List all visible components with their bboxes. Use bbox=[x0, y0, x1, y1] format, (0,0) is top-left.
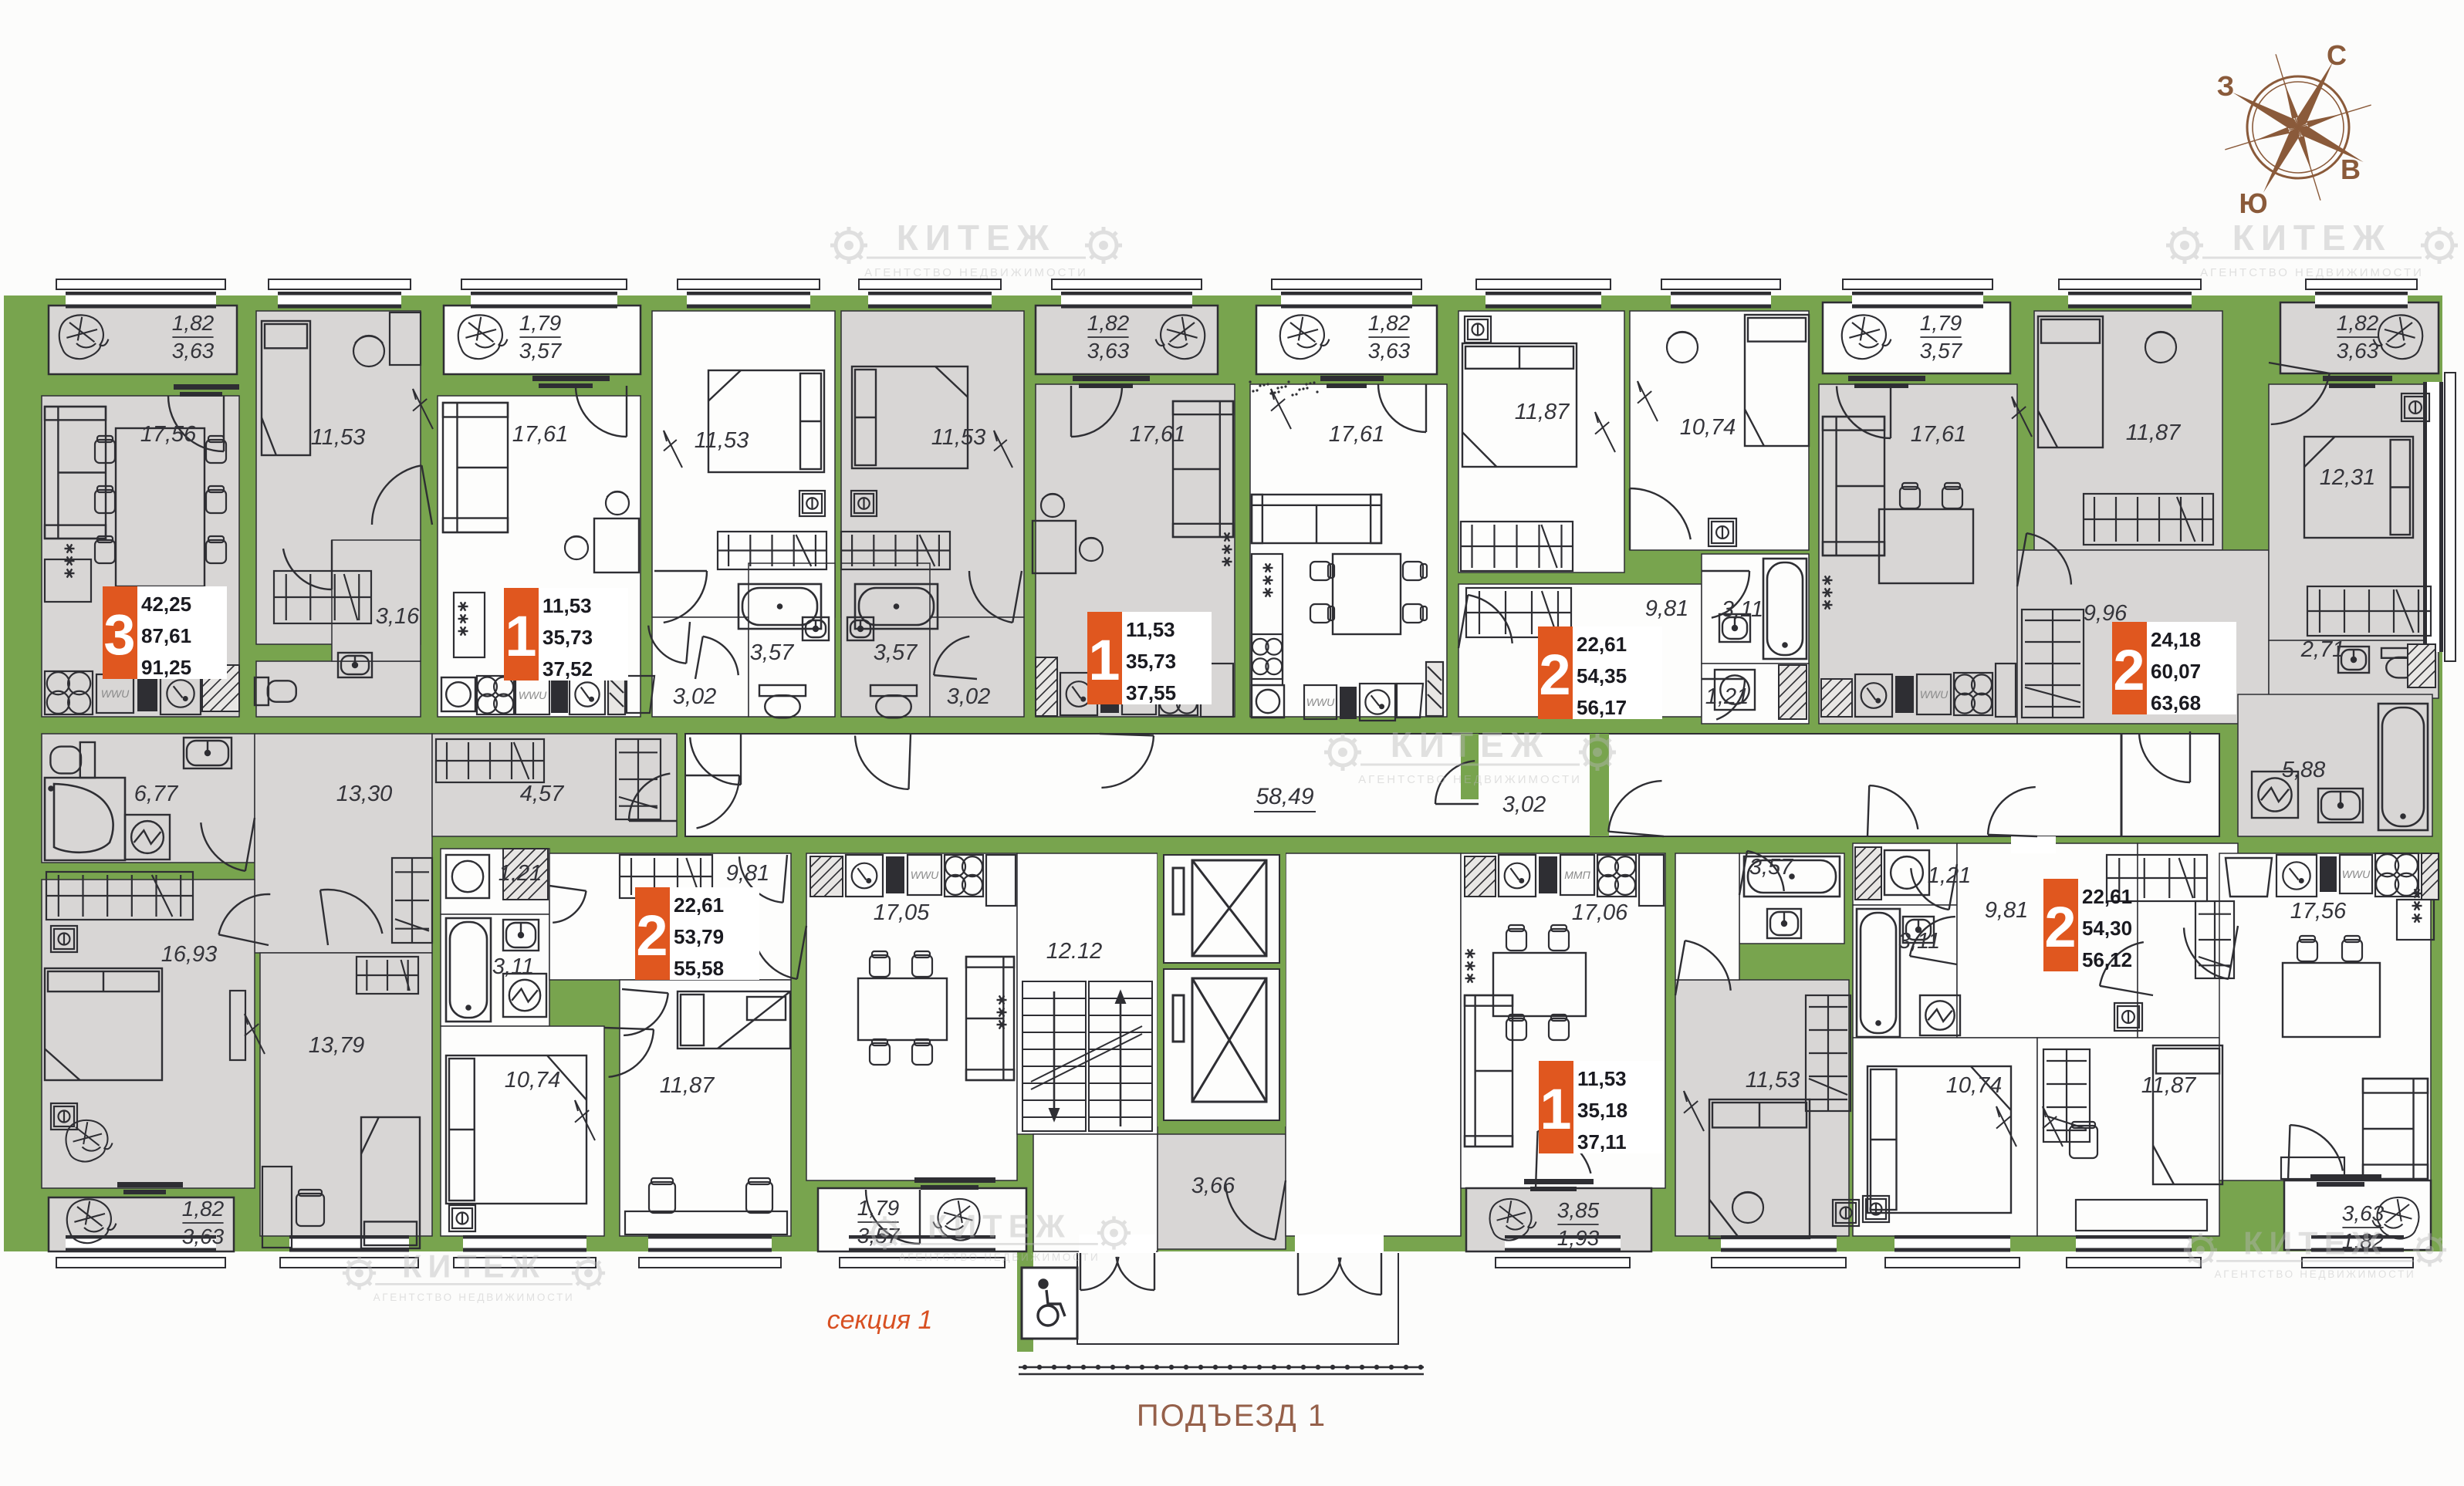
svg-text:6,77: 6,77 bbox=[134, 782, 179, 806]
svg-text:секция 1: секция 1 bbox=[827, 1305, 933, 1335]
svg-text:Ю: Ю bbox=[2239, 187, 2267, 219]
svg-text:10,74: 10,74 bbox=[1946, 1073, 2003, 1098]
svg-text:17,05: 17,05 bbox=[874, 900, 930, 925]
svg-text:2,71: 2,71 bbox=[2300, 637, 2344, 662]
svg-text:3,63: 3,63 bbox=[172, 339, 215, 363]
svg-text:11,53: 11,53 bbox=[695, 428, 749, 453]
svg-text:58,49: 58,49 bbox=[1256, 784, 1313, 809]
svg-text:1: 1 bbox=[505, 604, 536, 668]
svg-text:АГЕНТСТВО НЕДВИЖИМОСТИ: АГЕНТСТВО НЕДВИЖИМОСТИ bbox=[864, 266, 1088, 279]
svg-text:55,58: 55,58 bbox=[674, 957, 724, 980]
svg-text:11,87: 11,87 bbox=[1515, 400, 1570, 424]
svg-text:11,53: 11,53 bbox=[1746, 1068, 1800, 1093]
svg-text:3,63: 3,63 bbox=[2337, 339, 2379, 363]
svg-text:1,82: 1,82 bbox=[1368, 311, 1411, 335]
svg-text:54,30: 54,30 bbox=[2082, 917, 2132, 940]
svg-text:17,61: 17,61 bbox=[1130, 422, 1186, 447]
svg-text:3,57: 3,57 bbox=[750, 640, 795, 665]
svg-text:2: 2 bbox=[2044, 895, 2076, 959]
svg-text:11,87: 11,87 bbox=[2141, 1073, 2197, 1098]
svg-text:АГЕНТСТВО НЕДВИЖИМОСТИ: АГЕНТСТВО НЕДВИЖИМОСТИ bbox=[2200, 266, 2424, 279]
svg-text:3,02: 3,02 bbox=[947, 684, 990, 709]
svg-text:КИТЕЖ: КИТЕЖ bbox=[928, 1208, 1071, 1244]
svg-text:42,25: 42,25 bbox=[141, 593, 191, 616]
svg-text:WWU: WWU bbox=[911, 869, 939, 881]
svg-text:КИТЕЖ: КИТЕЖ bbox=[897, 218, 1056, 258]
svg-text:17,06: 17,06 bbox=[1572, 900, 1628, 925]
svg-text:11,87: 11,87 bbox=[660, 1073, 715, 1098]
svg-text:17,61: 17,61 bbox=[1911, 422, 1967, 447]
svg-text:3,11: 3,11 bbox=[1898, 929, 1940, 954]
svg-text:11,53: 11,53 bbox=[542, 594, 592, 617]
svg-text:56,17: 56,17 bbox=[1577, 696, 1627, 719]
svg-text:17,61: 17,61 bbox=[1329, 422, 1385, 447]
svg-text:3,63: 3,63 bbox=[1087, 339, 1130, 363]
svg-text:5,88: 5,88 bbox=[2282, 758, 2325, 782]
svg-text:3,57: 3,57 bbox=[874, 640, 918, 665]
svg-text:КИТЕЖ: КИТЕЖ bbox=[1391, 724, 1550, 765]
svg-text:10,74: 10,74 bbox=[505, 1068, 561, 1093]
svg-text:WWU: WWU bbox=[1920, 688, 1949, 701]
svg-text:З: З bbox=[2217, 70, 2235, 102]
svg-text:АГЕНТСТВО НЕДВИЖИМОСТИ: АГЕНТСТВО НЕДВИЖИМОСТИ bbox=[373, 1292, 575, 1303]
svg-text:10,74: 10,74 bbox=[1680, 415, 1736, 440]
svg-text:60,07: 60,07 bbox=[2151, 660, 2201, 683]
svg-text:1,82: 1,82 bbox=[1087, 311, 1130, 335]
svg-text:9,81: 9,81 bbox=[726, 861, 769, 886]
svg-text:WWU: WWU bbox=[101, 687, 130, 700]
svg-text:37,11: 37,11 bbox=[1577, 1130, 1627, 1153]
svg-text:АГЕНТСТВО НЕДВИЖИМОСТИ: АГЕНТСТВО НЕДВИЖИМОСТИ bbox=[1358, 773, 1582, 786]
svg-text:22,61: 22,61 bbox=[1577, 633, 1627, 656]
svg-text:35,73: 35,73 bbox=[542, 626, 593, 649]
svg-text:37,52: 37,52 bbox=[542, 657, 593, 681]
svg-text:КИТЕЖ: КИТЕЖ bbox=[2232, 218, 2392, 258]
svg-text:17,56: 17,56 bbox=[2290, 899, 2347, 924]
svg-text:1,79: 1,79 bbox=[857, 1196, 900, 1220]
svg-text:16,93: 16,93 bbox=[161, 942, 218, 967]
svg-text:1,79: 1,79 bbox=[519, 311, 562, 335]
svg-text:АГЕНТСТВО НЕДВИЖИМОСТИ: АГЕНТСТВО НЕДВИЖИМОСТИ bbox=[2215, 1268, 2416, 1280]
svg-text:9,81: 9,81 bbox=[1985, 898, 2028, 923]
svg-text:3,57: 3,57 bbox=[1749, 855, 1794, 880]
svg-text:WWU: WWU bbox=[519, 689, 547, 701]
svg-text:11,53: 11,53 bbox=[1577, 1067, 1627, 1090]
svg-text:3,85: 3,85 bbox=[1557, 1198, 1600, 1222]
svg-text:1,82: 1,82 bbox=[172, 311, 215, 335]
svg-text:35,18: 35,18 bbox=[1577, 1099, 1627, 1122]
svg-text:91,25: 91,25 bbox=[141, 656, 191, 679]
svg-text:13,79: 13,79 bbox=[309, 1033, 365, 1058]
svg-text:3,57: 3,57 bbox=[1920, 339, 1963, 363]
svg-text:22,61: 22,61 bbox=[2082, 885, 2132, 908]
svg-text:3,11: 3,11 bbox=[1722, 597, 1763, 622]
svg-text:1: 1 bbox=[1088, 628, 1120, 692]
svg-text:35,73: 35,73 bbox=[1126, 650, 1176, 673]
svg-text:2: 2 bbox=[1539, 643, 1570, 707]
svg-text:1,21: 1,21 bbox=[1705, 684, 1749, 709]
svg-text:В: В bbox=[2341, 154, 2361, 185]
svg-text:63,68: 63,68 bbox=[2151, 691, 2201, 714]
svg-text:3,11: 3,11 bbox=[492, 954, 534, 979]
svg-text:1,21: 1,21 bbox=[1928, 863, 1971, 888]
svg-text:11,53: 11,53 bbox=[1126, 618, 1175, 641]
svg-text:3,16: 3,16 bbox=[376, 604, 420, 629]
svg-text:87,61: 87,61 bbox=[141, 624, 191, 647]
svg-text:3,63: 3,63 bbox=[182, 1224, 225, 1248]
svg-text:17,56: 17,56 bbox=[140, 422, 197, 447]
svg-text:12.12: 12.12 bbox=[1046, 939, 1103, 964]
svg-text:22,61: 22,61 bbox=[674, 893, 724, 917]
svg-text:1,21: 1,21 bbox=[499, 861, 542, 886]
svg-text:ПОДЪЕЗД 1: ПОДЪЕЗД 1 bbox=[1137, 1399, 1327, 1433]
svg-text:КИТЕЖ: КИТЕЖ bbox=[2243, 1225, 2387, 1261]
svg-text:37,55: 37,55 bbox=[1126, 681, 1176, 704]
svg-text:3,02: 3,02 bbox=[1502, 792, 1546, 817]
svg-text:1: 1 bbox=[1540, 1077, 1571, 1141]
svg-text:54,35: 54,35 bbox=[1577, 664, 1627, 687]
svg-text:1,93: 1,93 bbox=[1557, 1226, 1600, 1250]
svg-text:АГЕНТСТВО НЕДВИЖИМОСТИ: АГЕНТСТВО НЕДВИЖИМОСТИ bbox=[899, 1251, 1100, 1263]
svg-text:3,66: 3,66 bbox=[1191, 1174, 1235, 1198]
svg-text:17,61: 17,61 bbox=[512, 422, 569, 447]
svg-text:3,63: 3,63 bbox=[1368, 339, 1411, 363]
svg-text:3,02: 3,02 bbox=[673, 684, 716, 709]
svg-text:12,31: 12,31 bbox=[2320, 465, 2376, 490]
svg-text:53,79: 53,79 bbox=[674, 925, 724, 948]
svg-text:1,79: 1,79 bbox=[1920, 311, 1962, 335]
svg-text:4,57: 4,57 bbox=[520, 782, 565, 806]
svg-text:WWU: WWU bbox=[2342, 868, 2371, 880]
svg-text:3,57: 3,57 bbox=[519, 339, 563, 363]
svg-text:13,30: 13,30 bbox=[336, 782, 393, 806]
svg-text:11,53: 11,53 bbox=[311, 425, 365, 450]
svg-text:3: 3 bbox=[103, 603, 135, 667]
svg-text:WWU: WWU bbox=[1306, 696, 1335, 708]
svg-text:С: С bbox=[2327, 39, 2347, 71]
svg-text:ММП: ММП bbox=[1564, 869, 1590, 881]
svg-text:11,87: 11,87 bbox=[2126, 420, 2182, 445]
svg-text:11,53: 11,53 bbox=[931, 425, 985, 450]
svg-text:56,12: 56,12 bbox=[2082, 948, 2132, 971]
svg-text:1,82: 1,82 bbox=[2337, 311, 2379, 335]
svg-text:КИТЕЖ: КИТЕЖ bbox=[402, 1248, 546, 1284]
svg-text:24,18: 24,18 bbox=[2151, 628, 2201, 651]
svg-text:2: 2 bbox=[2113, 638, 2145, 702]
svg-text:3,63: 3,63 bbox=[2342, 1201, 2385, 1225]
svg-text:1,82: 1,82 bbox=[182, 1197, 225, 1221]
svg-text:2: 2 bbox=[636, 903, 668, 968]
svg-text:9,81: 9,81 bbox=[1645, 596, 1688, 621]
